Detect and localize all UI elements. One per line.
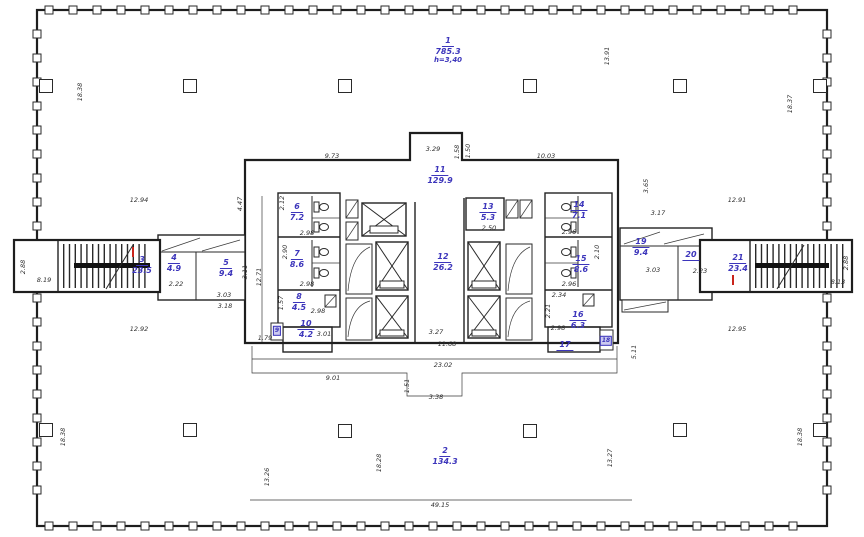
dimension-text: 3.29	[426, 145, 440, 153]
dimension-text: 3.18	[218, 302, 232, 310]
room-number: 18	[602, 337, 610, 345]
room-label-7: 78.6	[290, 249, 304, 269]
room-area: 26.2	[433, 263, 453, 273]
room-area: 9.4	[632, 248, 649, 258]
room-number: 6	[291, 202, 303, 213]
room-number: 2	[439, 446, 451, 457]
room-label-18: 18	[600, 336, 612, 346]
room-area: 129.9	[427, 176, 452, 186]
room-number: 12	[434, 252, 451, 263]
room-area: 7.1	[570, 211, 587, 221]
room-number: 20	[682, 250, 699, 261]
room-label-6: 67.2	[290, 202, 304, 222]
dimension-text: 2.88	[842, 256, 850, 270]
dimension-text: 2.21	[544, 304, 552, 318]
dimension-text: 11.68	[438, 340, 457, 348]
room-label-21: 2123.4	[728, 253, 748, 273]
dimension-text: 1.79	[258, 334, 272, 342]
dimension-text: 2.90	[281, 245, 289, 259]
dimension-text: 5.11	[630, 345, 638, 359]
room-label-12: 1226.2	[433, 252, 453, 272]
dimension-text: 3.27	[429, 328, 443, 336]
room-area: 8.6	[572, 265, 589, 275]
dimension-text: 18.38	[796, 428, 804, 447]
dimension-text: 2.98	[551, 324, 565, 332]
room-label-11: 11129.9	[427, 165, 452, 185]
room-label-13: 135.3	[479, 202, 496, 222]
dimension-text: 3.03	[217, 291, 231, 299]
room-number: 8	[293, 292, 305, 303]
room-number: 10	[297, 319, 314, 330]
room-area: 4.5	[292, 303, 306, 313]
dimension-text: 8.13	[831, 278, 845, 286]
room-label-17: 17	[556, 340, 573, 351]
room-number: 15	[572, 254, 589, 265]
dimension-text: 23.02	[434, 361, 453, 369]
room-number: 9	[275, 327, 279, 335]
room-number: 1	[442, 36, 454, 47]
room-label-5: 59.4	[219, 258, 233, 278]
dimension-text: 8.19	[37, 276, 51, 284]
room-number: 21	[729, 253, 746, 264]
dimension-text: 2.23	[693, 267, 707, 275]
room-number: 16	[569, 310, 586, 321]
dimension-text: 13.91	[603, 47, 611, 66]
dimension-text: 2.98	[300, 229, 314, 237]
room-number: 14	[570, 200, 587, 211]
dimension-text: 3.01	[317, 330, 331, 338]
dimension-text: 2.96	[562, 280, 576, 288]
room-label-19: 199.4	[632, 237, 649, 257]
room-number: 7	[291, 249, 303, 260]
room-area: 4.9	[167, 264, 181, 274]
dimension-text: 2.98	[311, 307, 325, 315]
dimension-text: 2.10	[593, 245, 601, 259]
room-label-20: 20	[682, 250, 699, 261]
dimension-text: 1.51	[403, 379, 411, 393]
room-number: 13	[479, 202, 496, 213]
dimension-text: 1.57	[277, 296, 285, 310]
room-label-1: 1785.3h=3,40	[434, 36, 462, 65]
dimension-text: 3.38	[429, 393, 443, 401]
room-number: 11	[431, 165, 448, 176]
room-area: 6.3	[569, 321, 586, 331]
dimension-text: 13.27	[606, 449, 614, 468]
dimension-text: 10.03	[537, 152, 556, 160]
room-number: 3	[136, 255, 148, 266]
room-label-8: 84.5	[292, 292, 306, 312]
dimension-text: 18.28	[375, 454, 383, 473]
room-area: 7.2	[290, 213, 304, 223]
dimension-text: 18.38	[59, 428, 67, 447]
dimension-text: 12.71	[255, 268, 263, 287]
room-label-2: 2134.3	[432, 446, 457, 466]
room-label-10: 104.2	[297, 319, 314, 339]
room-label-4: 44.9	[167, 253, 181, 273]
dimension-text: 18.38	[76, 83, 84, 102]
room-label-9: 9	[273, 326, 281, 336]
dimension-text: 2.12	[278, 196, 286, 210]
room-area: 5.3	[479, 213, 496, 223]
room-area: 785.3	[434, 47, 462, 57]
room-number: 4	[168, 253, 180, 264]
dimension-text: 2.22	[169, 280, 183, 288]
dimension-text: 2.34	[552, 291, 566, 299]
room-area: 134.3	[432, 457, 457, 467]
dimension-text: 9.73	[325, 152, 339, 160]
annotation-layer: 1785.3h=3,402134.3323.544.959.467.278.68…	[0, 0, 864, 537]
dimension-text: 2.96	[562, 228, 576, 236]
dimension-text: 2.98	[300, 280, 314, 288]
dimension-text: 2.50	[482, 224, 496, 232]
room-number: 19	[632, 237, 649, 248]
room-area: 23.5	[132, 266, 152, 276]
room-label-15: 158.6	[572, 254, 589, 274]
dimension-text: 3.11	[241, 265, 249, 279]
dimension-text: 3.65	[642, 179, 650, 193]
dimension-text: 18.37	[786, 95, 794, 114]
dimension-text: 13.26	[263, 468, 271, 487]
dimension-text: 9.01	[326, 374, 340, 382]
dimension-text: 12.91	[728, 196, 747, 204]
dimension-text: 2.88	[19, 260, 27, 274]
room-area: 4.2	[297, 330, 314, 340]
room-number: 17	[556, 340, 573, 351]
dimension-text: 49.15	[431, 501, 450, 509]
dimension-text: 3.03	[646, 266, 660, 274]
dimension-text: 12.94	[130, 196, 149, 204]
room-label-14: 147.1	[570, 200, 587, 220]
room-area: 8.6	[290, 260, 304, 270]
dimension-text: 12.92	[130, 325, 149, 333]
room-area: 23.4	[728, 264, 748, 274]
dimension-text: 12.95	[728, 325, 747, 333]
room-label-16: 166.3	[569, 310, 586, 330]
room-area: 9.4	[219, 269, 233, 279]
dimension-text: 1.50	[464, 144, 472, 158]
room-number: 5	[220, 258, 232, 269]
floorplan-page: 1785.3h=3,402134.3323.544.959.467.278.68…	[0, 0, 864, 537]
dimension-text: 4.47	[236, 197, 244, 211]
room-height-note: h=3,40	[434, 56, 462, 64]
dimension-text: 1.58	[453, 145, 461, 159]
room-label-3: 323.5	[132, 255, 152, 275]
dimension-text: 3.17	[651, 209, 665, 217]
